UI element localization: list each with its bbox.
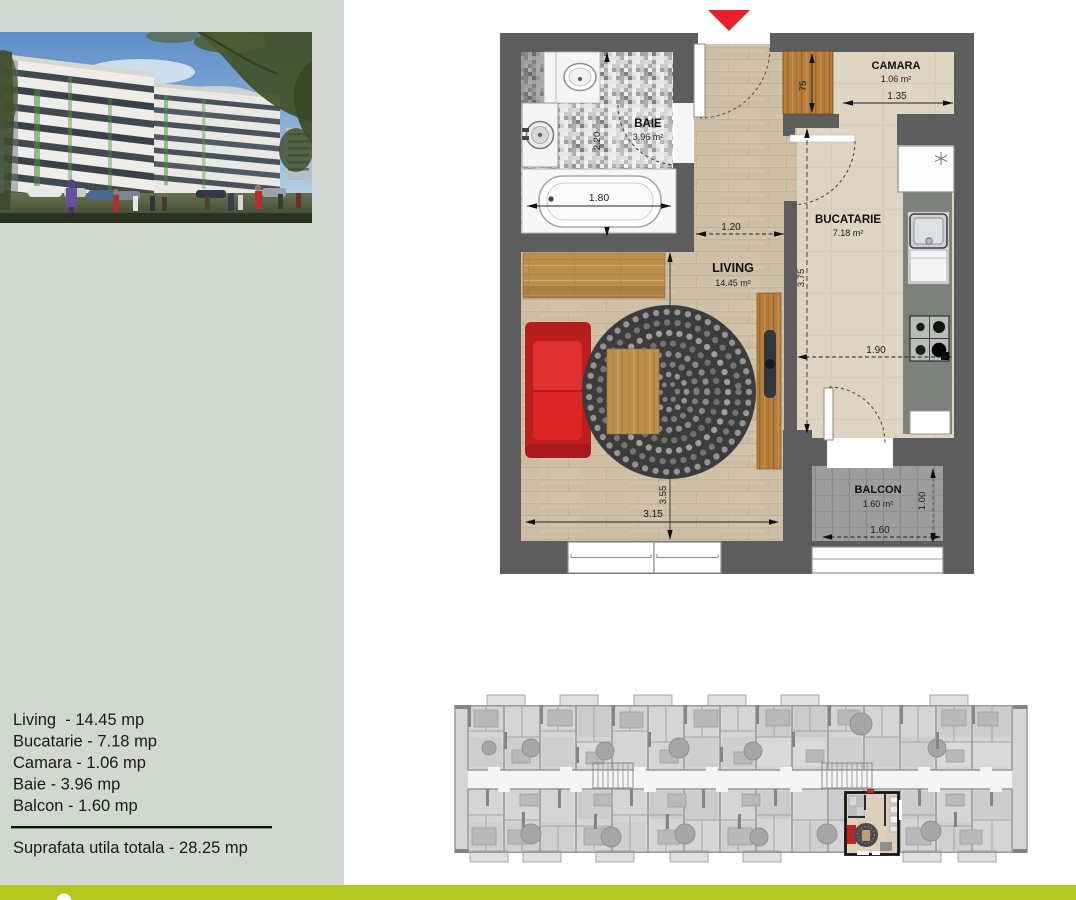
- svg-text:2.20: 2.20: [592, 132, 603, 151]
- svg-text:7.18 m²: 7.18 m²: [833, 228, 864, 238]
- svg-text:Suprafata utila totala - 28.25: Suprafata utila totala - 28.25 mp: [13, 839, 248, 857]
- svg-text:14.45 m²: 14.45 m²: [715, 278, 751, 288]
- svg-text:3.15: 3.15: [643, 509, 663, 520]
- svg-text:BALCON: BALCON: [854, 484, 901, 496]
- svg-text:Balcon - 1.60 mp: Balcon - 1.60 mp: [13, 797, 138, 815]
- svg-text:3.96 m²: 3.96 m²: [633, 132, 664, 142]
- svg-text:3.75: 3.75: [796, 269, 807, 288]
- svg-text:1.35: 1.35: [887, 91, 907, 102]
- svg-text:LIVING: LIVING: [712, 261, 754, 275]
- svg-text:CAMARA: CAMARA: [872, 60, 921, 72]
- svg-text:1.60 m²: 1.60 m²: [863, 499, 894, 509]
- svg-text:BUCATARIE: BUCATARIE: [815, 214, 881, 226]
- svg-text:BAIE: BAIE: [634, 118, 662, 130]
- svg-text:1.00: 1.00: [917, 492, 928, 511]
- svg-text:1.06 m²: 1.06 m²: [881, 74, 912, 84]
- svg-text:Living - 14.45 mp: Living - 14.45 mp: [13, 711, 144, 729]
- svg-text:1.20: 1.20: [721, 222, 741, 233]
- svg-text:1.80: 1.80: [589, 192, 610, 204]
- svg-text:Baie - 3.96 mp: Baie - 3.96 mp: [13, 776, 120, 794]
- svg-text:Camara - 1.06 mp: Camara - 1.06 mp: [13, 754, 146, 772]
- svg-text:3.55: 3.55: [658, 486, 669, 505]
- svg-text:1.60: 1.60: [870, 525, 890, 536]
- svg-text:Bucatarie - 7.18 mp: Bucatarie - 7.18 mp: [13, 733, 157, 751]
- svg-text:75: 75: [798, 81, 809, 92]
- svg-text:1.90: 1.90: [866, 345, 886, 356]
